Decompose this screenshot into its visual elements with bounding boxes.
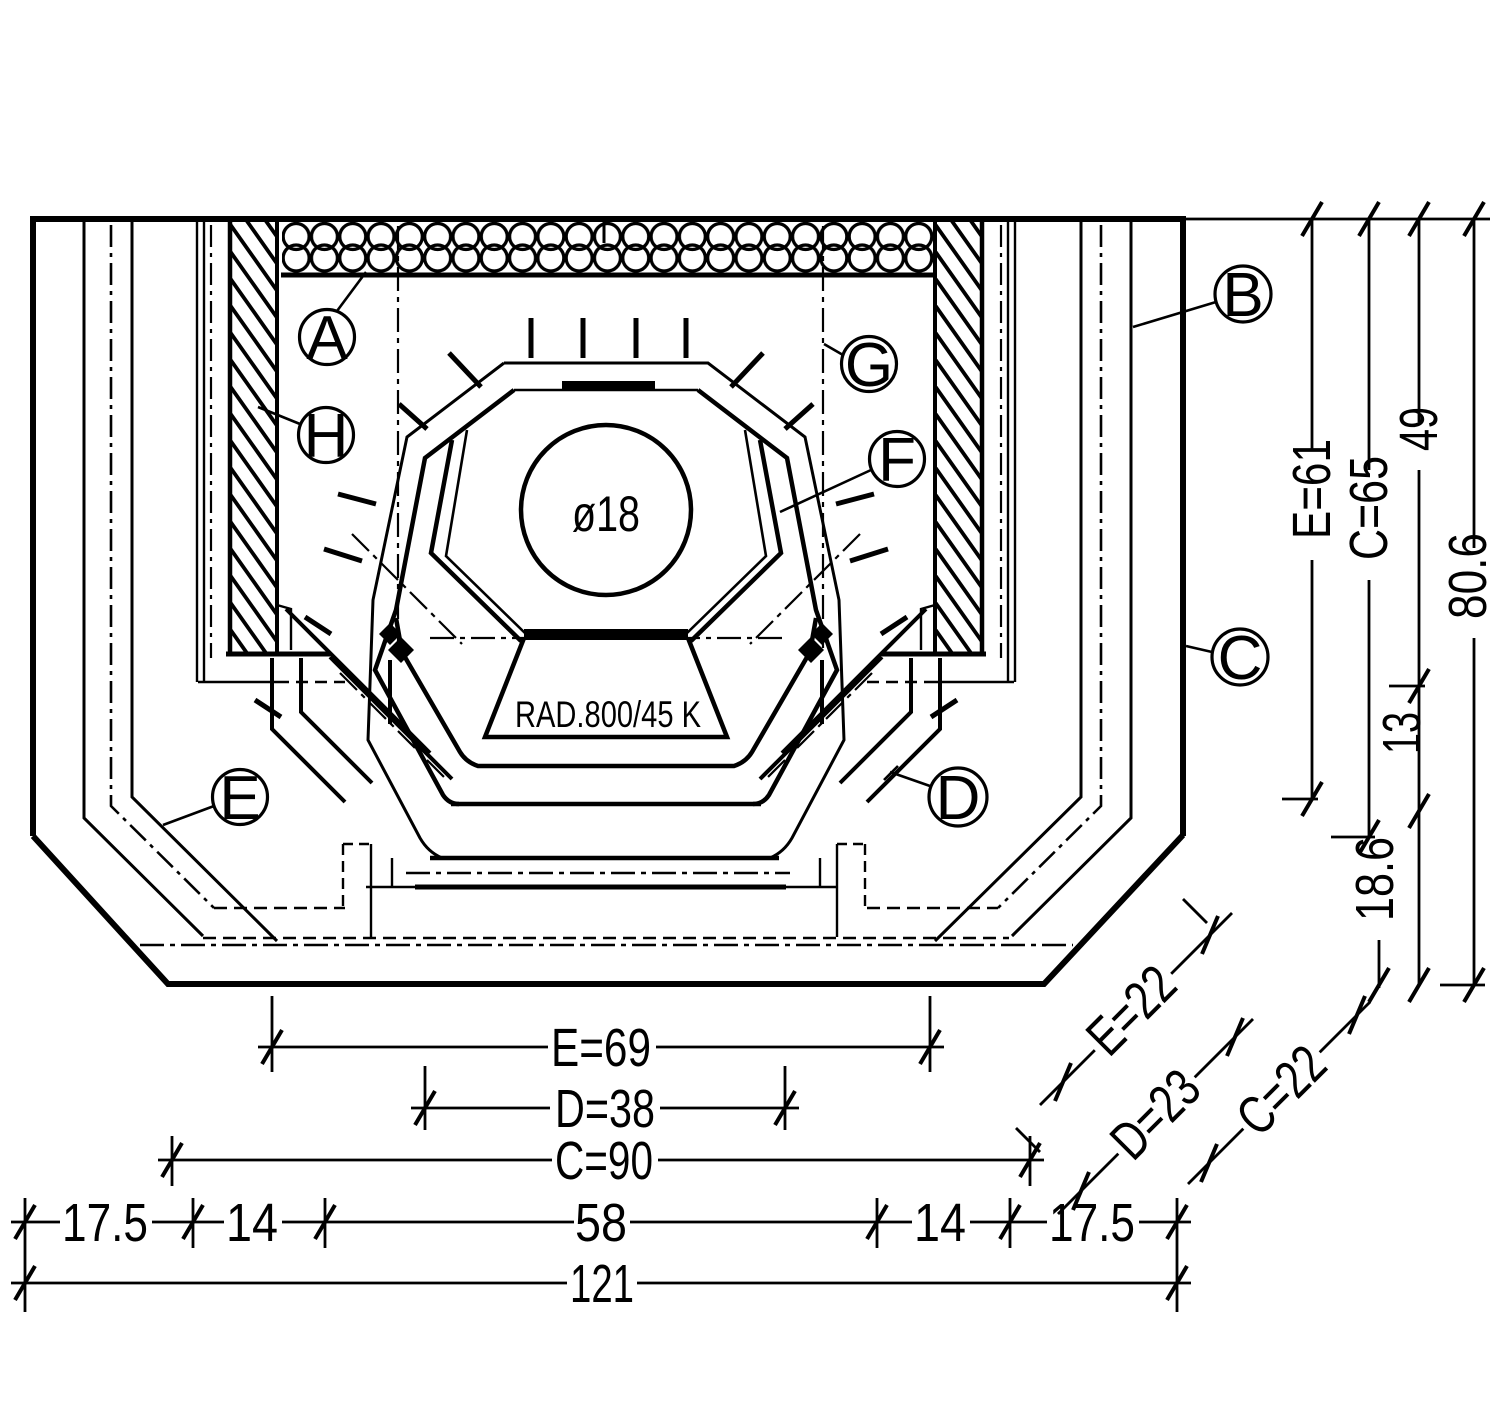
svg-text:E=69: E=69: [551, 1018, 651, 1078]
svg-text:RAD.800/45 K: RAD.800/45 K: [515, 694, 701, 735]
svg-text:C: C: [1218, 624, 1263, 693]
svg-text:D=38: D=38: [555, 1079, 655, 1139]
svg-text:121: 121: [570, 1254, 634, 1314]
svg-text:A: A: [306, 304, 348, 373]
svg-text:18.6: 18.6: [1345, 837, 1405, 921]
svg-text:14: 14: [226, 1193, 278, 1253]
svg-text:80.6: 80.6: [1438, 533, 1498, 619]
svg-text:H: H: [304, 402, 349, 471]
svg-text:C=90: C=90: [555, 1131, 653, 1191]
svg-text:G: G: [845, 331, 893, 400]
svg-text:14: 14: [914, 1193, 966, 1253]
svg-text:ø18: ø18: [572, 486, 640, 542]
svg-text:E: E: [219, 764, 260, 833]
svg-text:49: 49: [1389, 407, 1449, 451]
svg-text:B: B: [1222, 261, 1263, 330]
svg-text:13: 13: [1372, 712, 1432, 754]
svg-text:F: F: [878, 426, 916, 495]
svg-text:58: 58: [575, 1193, 627, 1253]
svg-text:17.5: 17.5: [1049, 1193, 1135, 1253]
svg-text:17.5: 17.5: [62, 1193, 148, 1253]
svg-text:E=61: E=61: [1282, 439, 1342, 539]
svg-text:C=65: C=65: [1339, 456, 1399, 560]
svg-text:D: D: [936, 764, 981, 833]
